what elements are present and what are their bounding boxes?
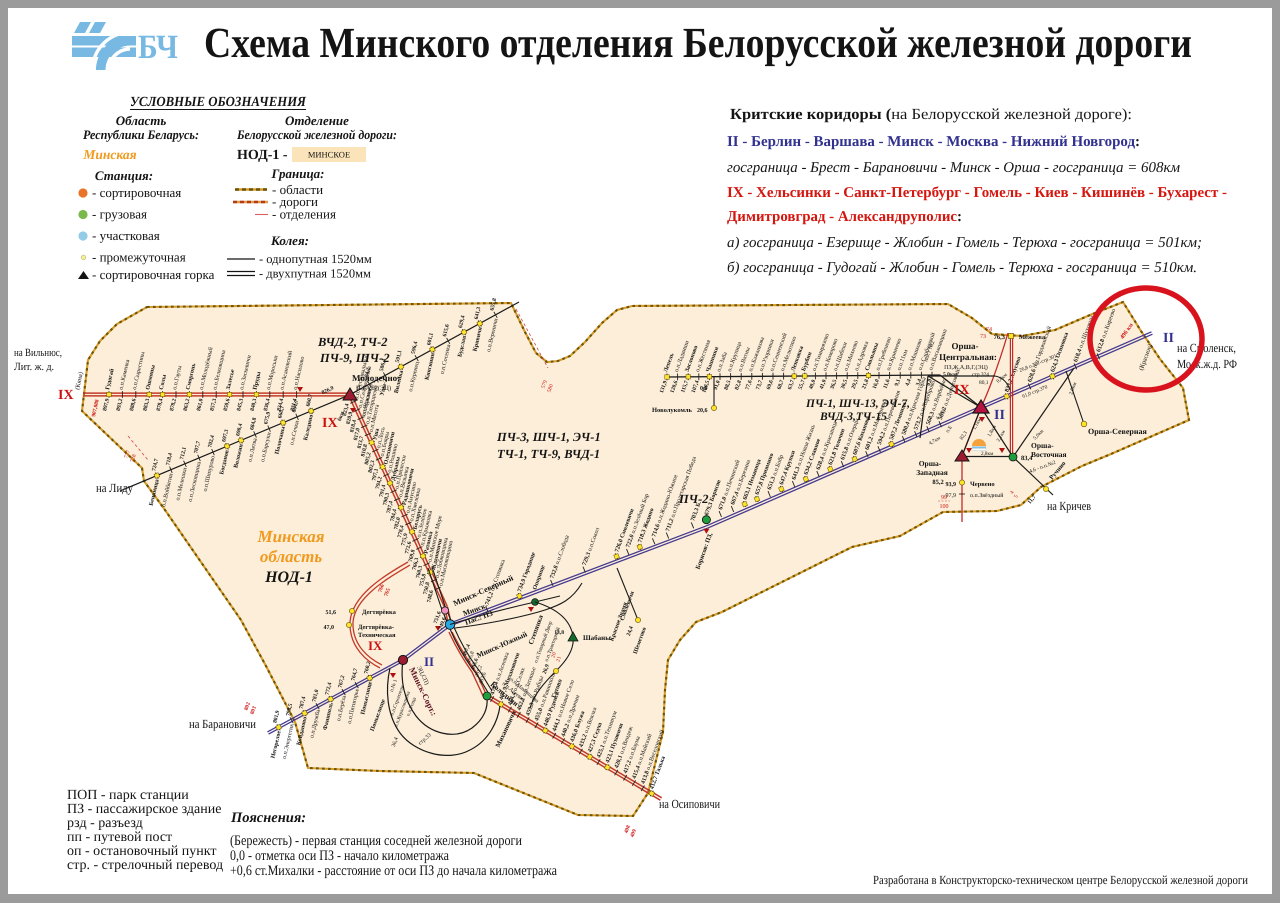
svg-text:- участковая: - участковая	[92, 228, 160, 243]
svg-text:Минская: Минская	[256, 527, 324, 546]
svg-text:73: 73	[980, 334, 986, 340]
svg-text:Орша-: Орша-	[1031, 441, 1054, 450]
svg-text:85,2: 85,2	[932, 479, 943, 486]
svg-text:на Кричев: на Кричев	[1047, 499, 1091, 513]
svg-text:Отделение: Отделение	[285, 113, 349, 128]
svg-text:- отделения: - отделения	[272, 207, 336, 222]
svg-text:ПЗ,Ж,А,В,Г,(ЭЦ): ПЗ,Ж,А,В,Г,(ЭЦ)	[944, 364, 988, 371]
svg-text:Колея:: Колея:	[270, 233, 309, 248]
svg-text:Дегтярёвка-: Дегтярёвка-	[358, 624, 394, 631]
svg-text:+0,6 ст.Михалки - расстояние о: +0,6 ст.Михалки - расстояние от оси ПЗ д…	[230, 863, 557, 879]
svg-text:Республики Беларусь:: Республики Беларусь:	[83, 127, 199, 142]
svg-text:IX: IX	[322, 416, 338, 431]
svg-text:II: II	[424, 654, 434, 669]
svg-text:ВЧД-2, ТЧ-2: ВЧД-2, ТЧ-2	[317, 335, 388, 349]
svg-text:76,3: 76,3	[994, 334, 1006, 341]
svg-text:Лит. ж. д.: Лит. ж. д.	[14, 361, 54, 373]
svg-text:Орша-Северная: Орша-Северная	[1088, 427, 1147, 436]
svg-text:97,9: 97,9	[946, 493, 957, 499]
svg-text:на Лиду: на Лиду	[96, 481, 134, 495]
svg-text:Граница:: Граница:	[271, 166, 325, 181]
svg-text:ПОП - парк станции: ПОП - парк станции	[67, 788, 189, 803]
svg-text:на Осиповичи: на Осиповичи	[659, 797, 720, 811]
svg-text:НОД-1: НОД-1	[264, 569, 313, 586]
svg-text:Молодечно:: Молодечно:	[352, 373, 400, 383]
svg-text:оп - остановочный пункт: оп - остановочный пункт	[67, 844, 217, 859]
svg-text:Станция:: Станция:	[95, 168, 153, 183]
svg-text:74: 74	[986, 327, 992, 333]
svg-text:ТЧ-1, ТЧ-9, ВЧД-1: ТЧ-1, ТЧ-9, ВЧД-1	[497, 447, 600, 461]
svg-text:рзд - разъезд: рзд - разъезд	[67, 816, 143, 831]
svg-text:Димитровград - Александруполис: Димитровград - Александруполис:	[727, 209, 962, 225]
svg-text:51,6: 51,6	[326, 610, 337, 616]
svg-text:- двухпутная 1520мм: - двухпутная 1520мм	[259, 267, 371, 281]
svg-text:Область: Область	[116, 113, 167, 128]
svg-text:область: область	[260, 547, 323, 566]
svg-text:- грузовая: - грузовая	[92, 207, 147, 222]
svg-text:Восточная: Восточная	[1031, 450, 1067, 459]
svg-text:Разработана в Конструкторско: Разработана в Конструкторско-техническом…	[873, 873, 1248, 887]
svg-text:Схема Минского отделения Белор: Схема Минского отделения Белорусской жел…	[204, 20, 1192, 67]
svg-text:ПЗ,А,В,(ЭЦ): ПЗ,А,В,(ЭЦ)	[356, 385, 391, 392]
svg-text:о.п.Звёздный: о.п.Звёздный	[970, 492, 1004, 499]
svg-text:IX: IX	[954, 383, 970, 398]
svg-text:пп - путевой пост: пп - путевой пост	[67, 830, 172, 845]
svg-text:80,1: 80,1	[979, 380, 989, 386]
svg-text:Западная: Западная	[916, 468, 948, 477]
svg-text:ПЧ-3, ШЧ-1, ЭЧ-1: ПЧ-3, ШЧ-1, ЭЧ-1	[496, 430, 601, 444]
svg-text:Шабаны: Шабаны	[583, 634, 611, 642]
svg-text:- однопутная 1520мм: - однопутная 1520мм	[259, 252, 372, 266]
svg-text:Минская: Минская	[82, 147, 136, 162]
svg-text:Моск.ж.д. РФ: Моск.ж.д. РФ	[1177, 357, 1237, 371]
svg-text:47,0: 47,0	[324, 625, 335, 631]
svg-text:93,9: 93,9	[946, 482, 957, 488]
svg-text:II: II	[994, 408, 1005, 423]
svg-text:Критские коридоры (на Белорусс: Критские коридоры (на Белорусской железн…	[730, 106, 1132, 123]
svg-text:5,0км: 5,0км	[943, 372, 957, 378]
svg-text:IX - Хельсинки - Санкт-Петербу: IX - Хельсинки - Санкт-Петербург - Гомел…	[727, 185, 1227, 201]
svg-text:Червено: Червено	[970, 481, 995, 488]
svg-text:2,8км: 2,8км	[981, 451, 994, 457]
svg-text:Межеева: Межеева	[1019, 334, 1046, 341]
svg-text:а) госграница - Езерище - Жлоб: а) госграница - Езерище - Жлобин - Гомел…	[727, 235, 1202, 251]
svg-text:Новолукомль: Новолукомль	[652, 407, 693, 414]
svg-text:на Смоленск,: на Смоленск,	[1177, 341, 1236, 355]
svg-text:стр.324: стр.324	[972, 372, 989, 378]
svg-text:ПЗ - пассажирское здание: ПЗ - пассажирское здание	[67, 802, 221, 817]
svg-text:IX: IX	[58, 388, 74, 403]
svg-text:Орша-: Орша-	[951, 341, 978, 351]
svg-text:Орша-: Орша-	[919, 459, 942, 468]
svg-text:УСЛОВНЫЕ ОБОЗНАЧЕНИЯ: УСЛОВНЫЕ ОБОЗНАЧЕНИЯ	[130, 95, 306, 110]
svg-text:Центральная:: Центральная:	[939, 352, 997, 362]
svg-text:б) госграница - Гудогай - Жлоб: б) госграница - Гудогай - Жлобин - Гомел…	[727, 260, 1197, 276]
svg-text:Белорусской железной дороги:: Белорусской железной дороги:	[236, 127, 397, 142]
svg-text:0,0 - отметка оси ПЗ - начало: 0,0 - отметка оси ПЗ - начало километраж…	[230, 848, 449, 864]
svg-text:II - Берлин - Варшава - Минск: II - Берлин - Варшава - Минск - Москва -…	[727, 134, 1140, 150]
svg-text:100: 100	[940, 504, 949, 510]
svg-text:Дегтярёвка: Дегтярёвка	[362, 609, 397, 616]
svg-text:20,6: 20,6	[697, 408, 708, 414]
svg-text:II: II	[1163, 331, 1174, 346]
svg-text:НОД-1 -: НОД-1 -	[237, 148, 288, 163]
svg-text:IX: IX	[368, 638, 383, 653]
svg-text:на Барановичи: на Барановичи	[189, 717, 256, 731]
svg-text:- сортировочная: - сортировочная	[92, 185, 181, 200]
svg-text:БЧ: БЧ	[138, 29, 178, 66]
svg-text:госграница - Брест - Баранович: госграница - Брест - Барановичи - Минск …	[727, 160, 1180, 176]
svg-text:(Бережесть) - первая станция с: (Бережесть) - первая станция соседней же…	[230, 833, 522, 849]
svg-text:МИНСКОЕ: МИНСКОЕ	[308, 150, 350, 160]
svg-text:стр. - стрелочный перевод: стр. - стрелочный перевод	[67, 858, 223, 873]
svg-text:- промежуточная: - промежуточная	[92, 250, 186, 265]
svg-text:- сортировочная горка: - сортировочная горка	[92, 267, 215, 282]
svg-text:13,8: 13,8	[554, 630, 564, 636]
svg-text:на Вильнюс,: на Вильнюс,	[14, 347, 62, 359]
svg-text:Пояснения:: Пояснения:	[230, 810, 306, 826]
svg-text:99: 99	[941, 495, 947, 501]
svg-text:ПЧ-9, ШЧ-2: ПЧ-9, ШЧ-2	[319, 351, 390, 365]
